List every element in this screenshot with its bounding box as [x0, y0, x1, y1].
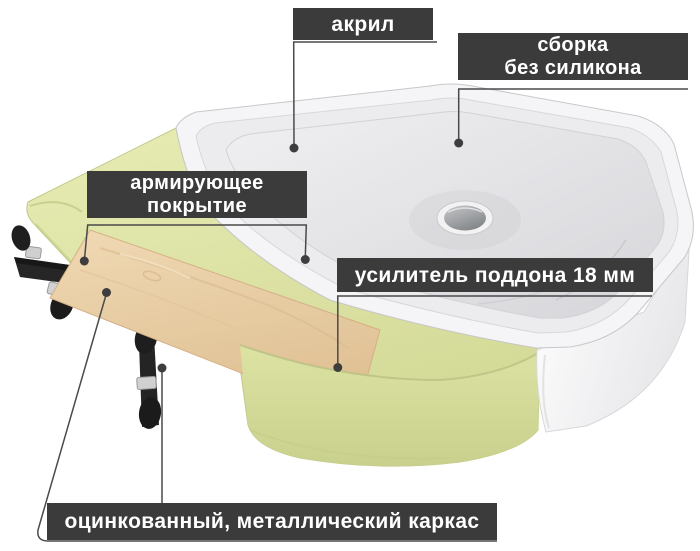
callout-tray-stiffener-text: усилитель поддона 18 мм: [355, 264, 635, 287]
callout-galvanized-frame-text: оцинкованный, металлический каркас: [65, 510, 480, 533]
callout-acrylic-text: акрил: [331, 13, 394, 36]
callout-reinforcing-coating: армирующее покрытие: [87, 171, 307, 218]
callout-acrylic: акрил: [293, 8, 433, 40]
callout-no-silicone-line1: сборка: [537, 34, 608, 57]
callout-tray-stiffener: усилитель поддона 18 мм: [337, 258, 653, 292]
callout-galvanized-frame: оцинкованный, металлический каркас: [47, 503, 497, 540]
callout-no-silicone-line2: без силикона: [504, 57, 641, 80]
product-diagram-shower-tray: акрил сборка без силикона армирующее пок…: [0, 0, 700, 551]
drain-icon: [437, 201, 493, 235]
callout-reinforcing-line1: армирующее: [130, 172, 263, 195]
callout-reinforcing-line2: покрытие: [147, 195, 247, 218]
callout-no-silicone-assembly: сборка без силикона: [458, 33, 688, 80]
